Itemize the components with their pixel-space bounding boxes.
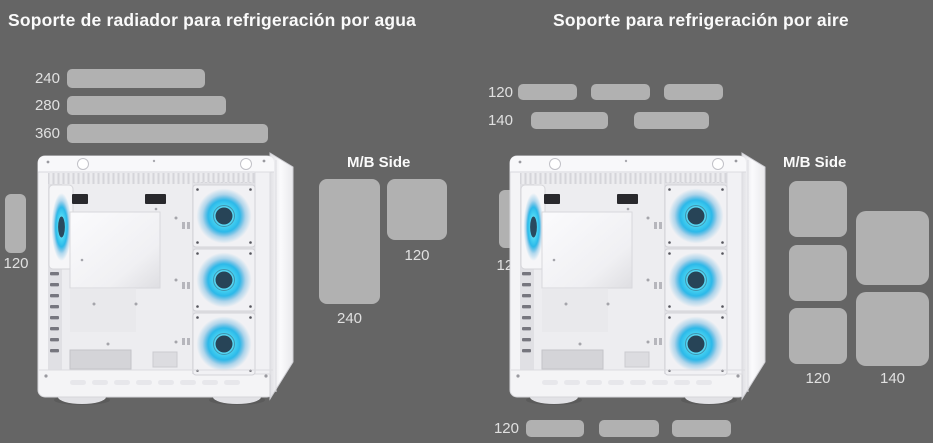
rear-fan-120-bar bbox=[5, 194, 26, 253]
pc-case-water-illustration bbox=[36, 152, 294, 405]
top-radiator-240-bar bbox=[67, 69, 205, 88]
top-fan-120-slot bbox=[664, 84, 723, 100]
top-radiator-360-bar bbox=[67, 124, 268, 143]
mb-side-heading-right: M/B Side bbox=[783, 154, 846, 171]
mb-side-fan-120-pad bbox=[789, 308, 847, 364]
mb-side-radiator-240-pad bbox=[319, 179, 380, 304]
mb-side-fan-140-pad bbox=[856, 211, 929, 285]
mb-side-radiator-240-label: 240 bbox=[319, 310, 380, 326]
mb-side-fan-120-label: 120 bbox=[387, 247, 447, 263]
top-radiator-280-bar bbox=[67, 96, 226, 115]
top-fans-120-label: 120 bbox=[473, 84, 513, 100]
mb-side-heading-left: M/B Side bbox=[347, 154, 410, 171]
rear-fan-120-label: 120 bbox=[0, 255, 38, 271]
top-fan-140-slot bbox=[531, 112, 608, 129]
cooling-support-infographic: Soporte de radiador para refrigeración p… bbox=[0, 0, 933, 443]
bottom-fans-120-label: 120 bbox=[479, 420, 519, 437]
top-fan-120-slot bbox=[518, 84, 577, 100]
bottom-fan-120-slot bbox=[526, 420, 584, 437]
water-cooling-title: Soporte de radiador para refrigeración p… bbox=[8, 10, 416, 31]
top-radiator-280-label: 280 bbox=[20, 96, 60, 115]
mb-side-fan-140-pad bbox=[856, 292, 929, 366]
top-fans-140-label: 140 bbox=[473, 112, 513, 129]
mb-side-fan-120-pad bbox=[789, 181, 847, 237]
mb-side-fan-120-pad bbox=[789, 245, 847, 301]
top-radiator-240-label: 240 bbox=[20, 69, 60, 88]
top-fan-140-slot bbox=[634, 112, 709, 129]
pc-case-air-illustration bbox=[508, 152, 766, 405]
mb-side-fans-140-label: 140 bbox=[856, 370, 929, 386]
top-fan-120-slot bbox=[591, 84, 650, 100]
bottom-fan-120-slot bbox=[599, 420, 659, 437]
top-radiator-360-label: 360 bbox=[20, 124, 60, 143]
mb-side-fans-120-label: 120 bbox=[789, 370, 847, 386]
mb-side-fan-120-pad bbox=[387, 179, 447, 240]
air-cooling-title: Soporte para refrigeración por aire bbox=[553, 10, 849, 31]
bottom-fan-120-slot bbox=[672, 420, 731, 437]
